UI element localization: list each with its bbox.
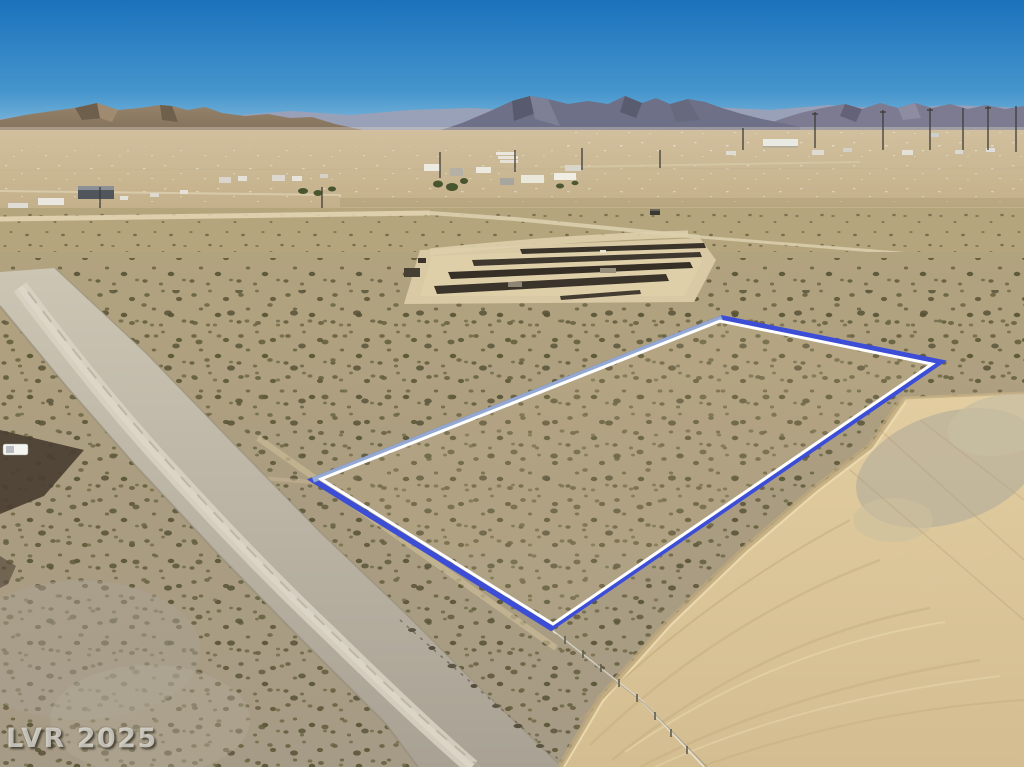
aerial-photo: LVR 2025 (0, 0, 1024, 767)
watermark: LVR 2025 (6, 723, 158, 754)
white-vehicle (3, 444, 28, 455)
scene-svg (0, 0, 1024, 767)
